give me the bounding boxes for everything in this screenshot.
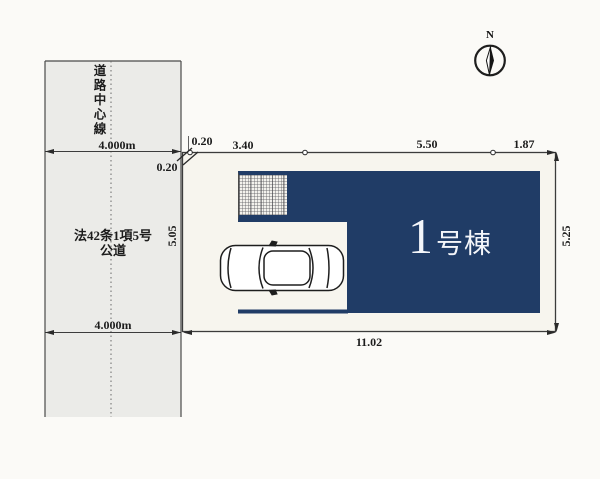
dim-label-offset-top: 0.20 (192, 135, 213, 147)
dim-label-top-2: 5.50 (417, 138, 438, 150)
boundary-break-mark (177, 148, 198, 165)
road-name-label: 法42条1項5号 公道 (74, 228, 152, 258)
compass-north-label: N (486, 30, 494, 41)
dim-label-bottom: 11.02 (356, 336, 382, 348)
road-centerline-label: 道路中心線 (92, 64, 105, 137)
dim-label-road-width-top: 4.000m (99, 139, 136, 151)
north-compass-icon (473, 43, 507, 79)
site-plan-canvas: N 道路中心線 4.000m 4.000m 法42条1項5号 公道 0.20 0… (0, 0, 600, 479)
dim-label-road-width-bottom: 4.000m (95, 319, 132, 331)
dim-label-left-side: 5.05 (166, 226, 178, 247)
building-suffix: 号棟 (436, 231, 492, 258)
road-name-line2: 公道 (74, 243, 152, 258)
building-name-label: 1 号棟 (408, 211, 492, 261)
hatched-porch-area (238, 171, 287, 222)
dim-label-top-1: 3.40 (233, 139, 254, 151)
dim-label-top-3: 1.87 (514, 138, 535, 150)
dim-label-right-side: 5.25 (560, 226, 572, 247)
dim-label-offset-left: 0.20 (157, 161, 178, 173)
building-number: 1 (408, 211, 433, 261)
road-name-line1: 法42条1項5号 (74, 228, 152, 243)
car-top-view-icon (217, 239, 347, 297)
